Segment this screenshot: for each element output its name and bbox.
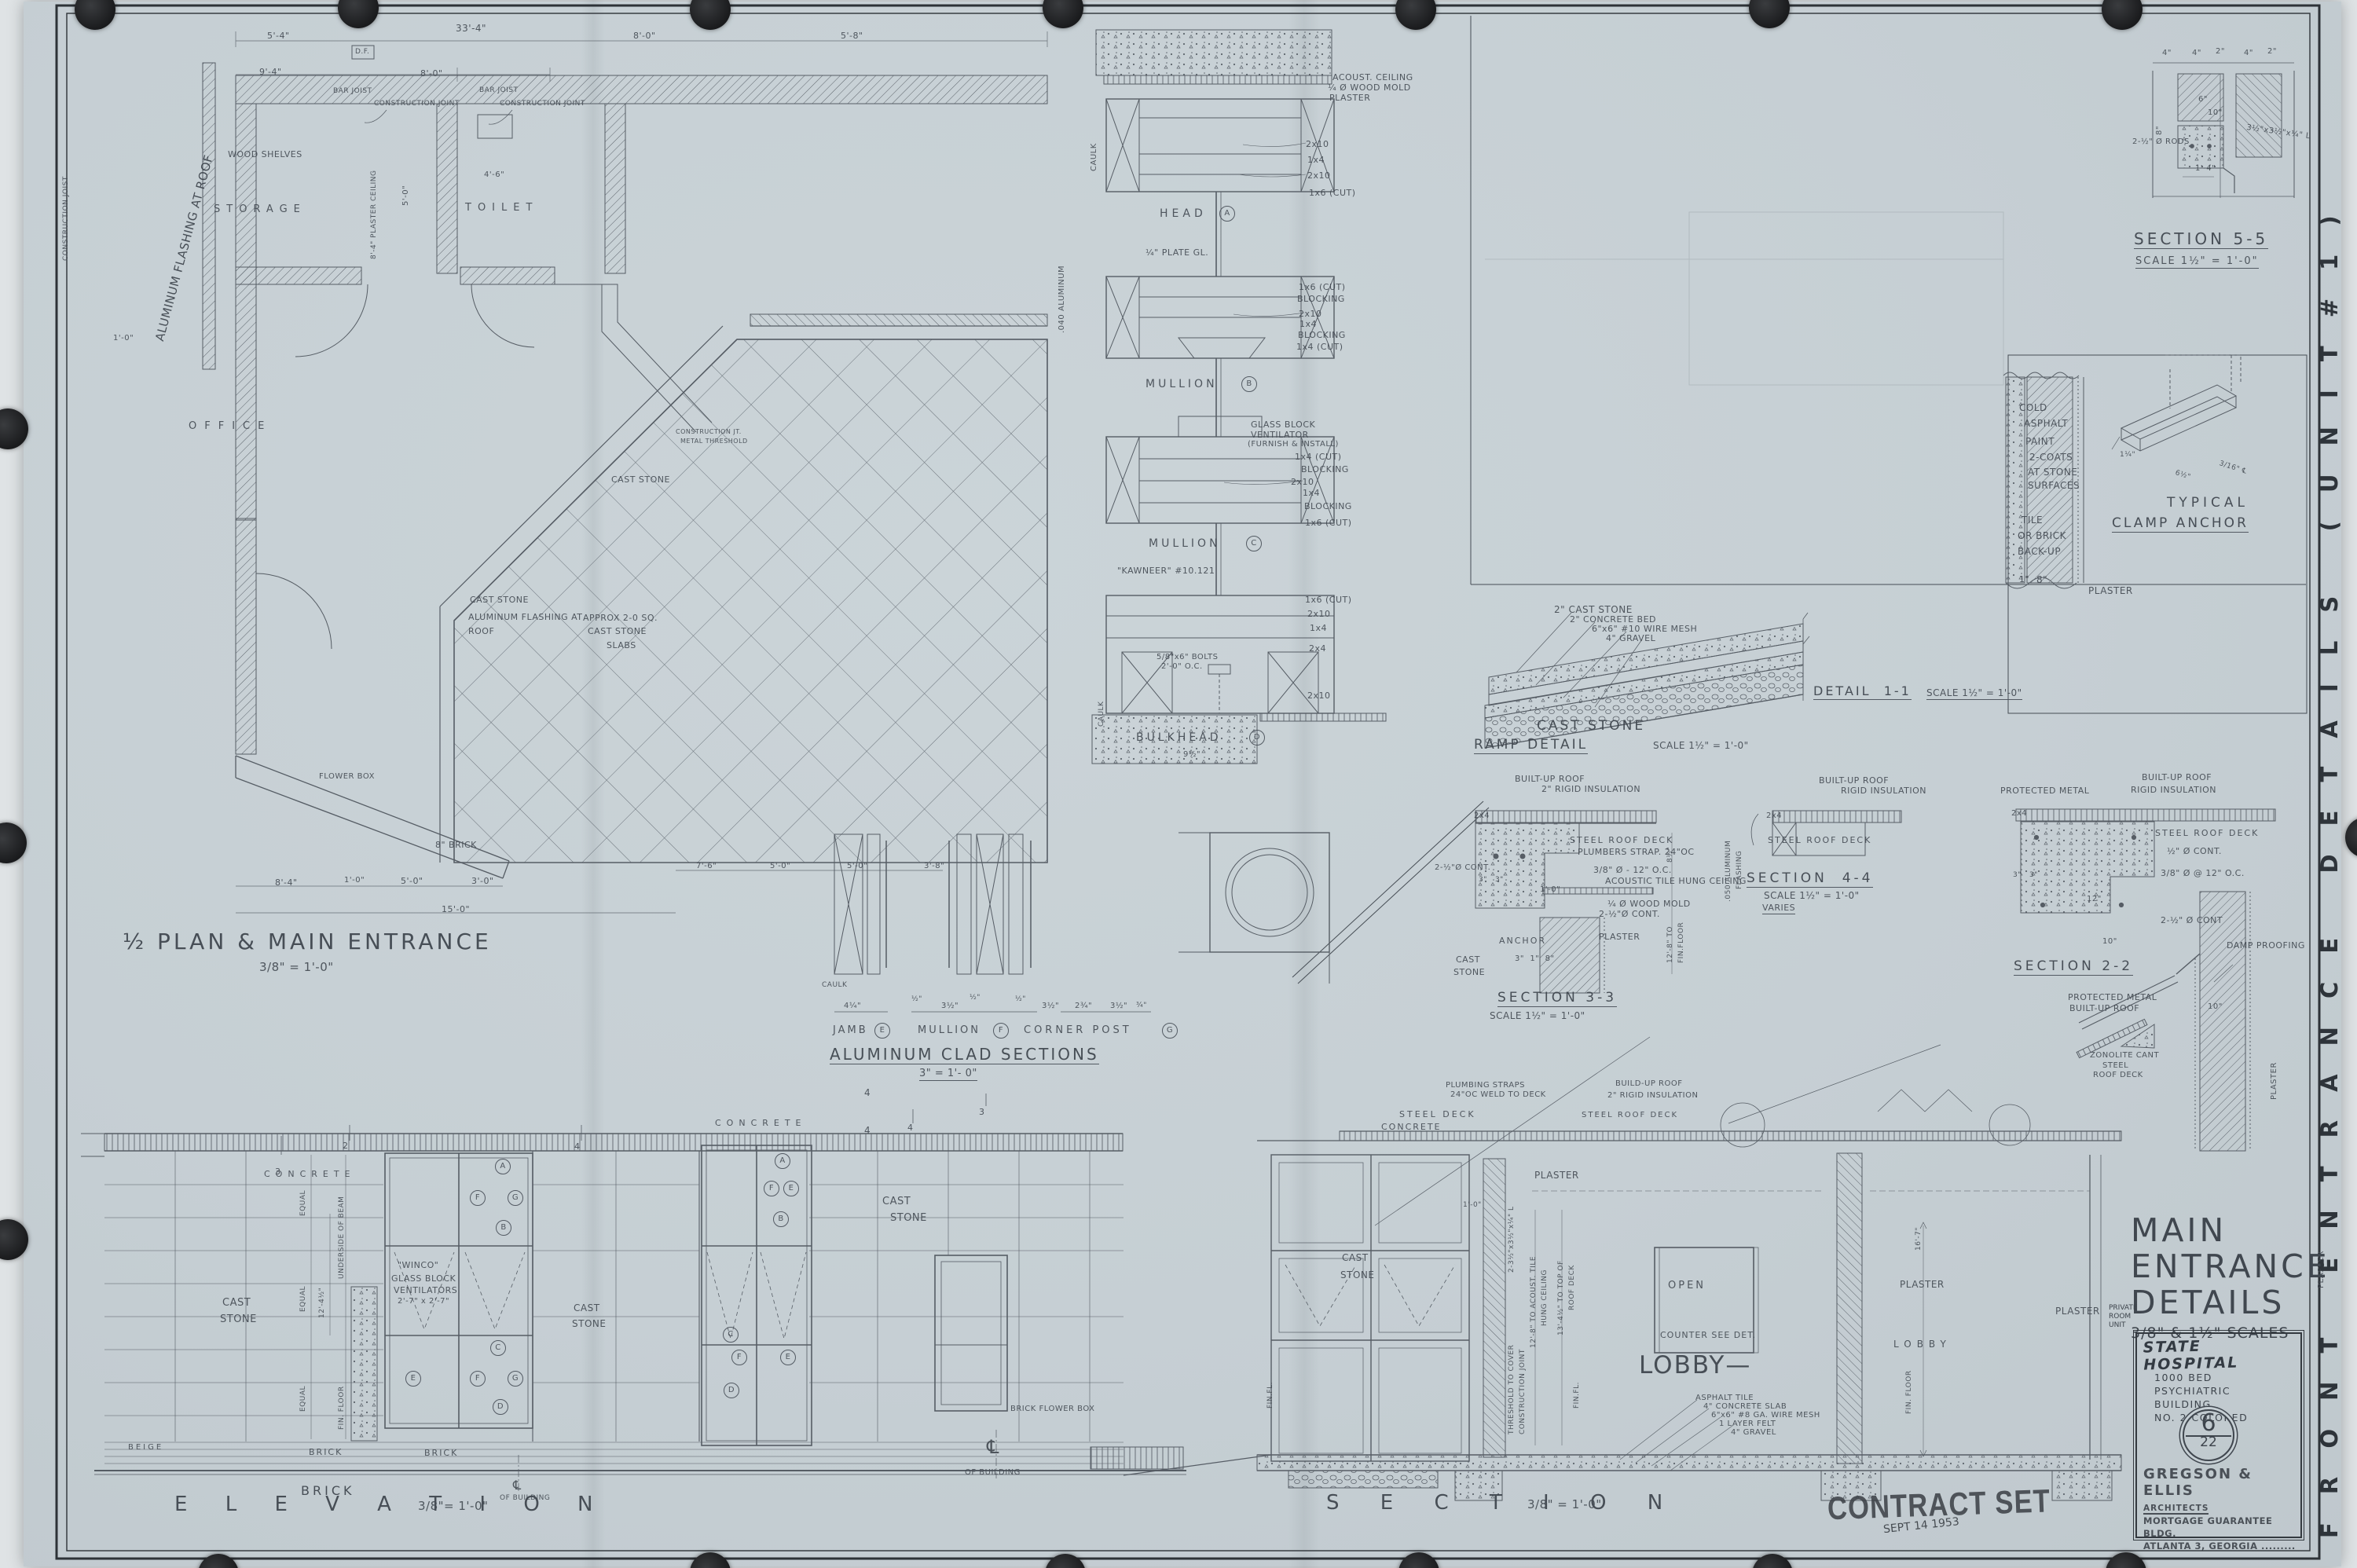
architect-name: GREGSON & ELLIS bbox=[2143, 1466, 2300, 1499]
sheet-number-circle: 6 22 bbox=[2183, 1409, 2234, 1461]
architect-addr1: MORTGAGE GUARANTEE BLDG. bbox=[2143, 1515, 2300, 1540]
project-sub2: PSYCHIATRIC bbox=[2154, 1385, 2300, 1398]
project-sub1: 1000 BED bbox=[2154, 1372, 2300, 1385]
unit-note: PRIVATE ROOM UNIT bbox=[2109, 1304, 2138, 1329]
sheet-title-line3: DETAILS bbox=[2131, 1285, 2310, 1321]
project-sub3: BUILDING bbox=[2154, 1398, 2300, 1412]
architect-addr2: ATLANTA 3, GEORGIA ......... bbox=[2143, 1540, 2300, 1552]
architect-block: GREGSON & ELLIS ARCHITECTS MORTGAGE GUAR… bbox=[2143, 1466, 2300, 1552]
sheet-edge-title: F R O N T E N T R A N C E D E T A I L S … bbox=[2316, 46, 2343, 1538]
architect-role: ARCHITECTS bbox=[2143, 1504, 2209, 1515]
sheet-title-line1: MAIN bbox=[2131, 1213, 2310, 1249]
drawing-linework bbox=[0, 0, 2357, 1568]
blueprint-screenshot: ALUMINUM FLASHING AT ROOFCONSTRUCTION JO… bbox=[0, 0, 2357, 1568]
sheet-number: 6 bbox=[2184, 1412, 2233, 1435]
sheet-total: 22 bbox=[2184, 1435, 2233, 1449]
project-name: STATE HOSPITAL bbox=[2143, 1335, 2300, 1373]
contract-set-stamp: CONTRACT SET SEPT 14 1953 bbox=[1827, 1482, 2040, 1532]
title-block: MAIN ENTRANCE DETAILS 3/8" & 1½" SCALES … bbox=[2131, 1213, 2310, 1342]
title-block-box: STATE HOSPITAL 1000 BED PSYCHIATRIC BUIL… bbox=[2135, 1332, 2302, 1538]
sheet-title-line2: ENTRANCE bbox=[2131, 1249, 2310, 1285]
